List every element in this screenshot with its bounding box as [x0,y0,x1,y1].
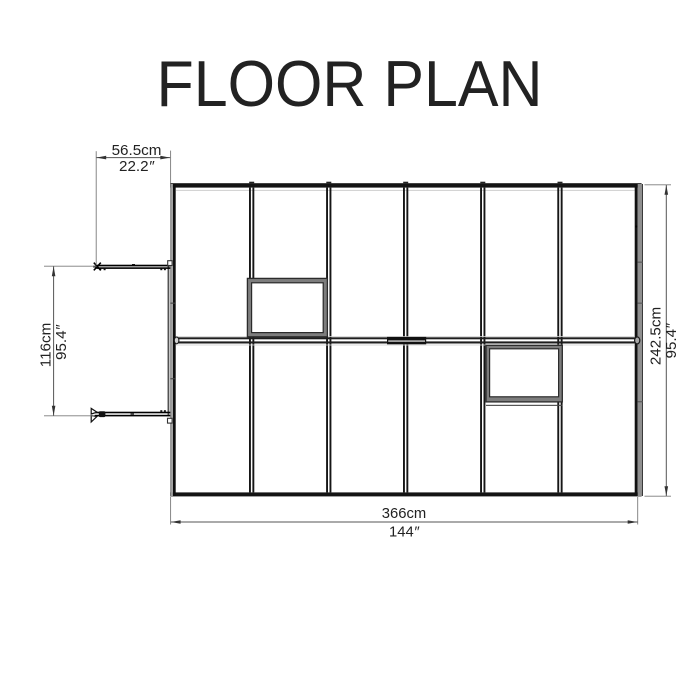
svg-text:366cm: 366cm [382,506,426,522]
svg-text:22.2″: 22.2″ [119,158,155,175]
svg-text:FLOOR PLAN: FLOOR PLAN [157,47,543,120]
svg-text:144″: 144″ [389,524,420,540]
svg-text:95.4″: 95.4″ [663,323,680,359]
svg-text:95.4″: 95.4″ [53,324,70,360]
svg-text:56.5cm: 56.5cm [112,142,162,159]
